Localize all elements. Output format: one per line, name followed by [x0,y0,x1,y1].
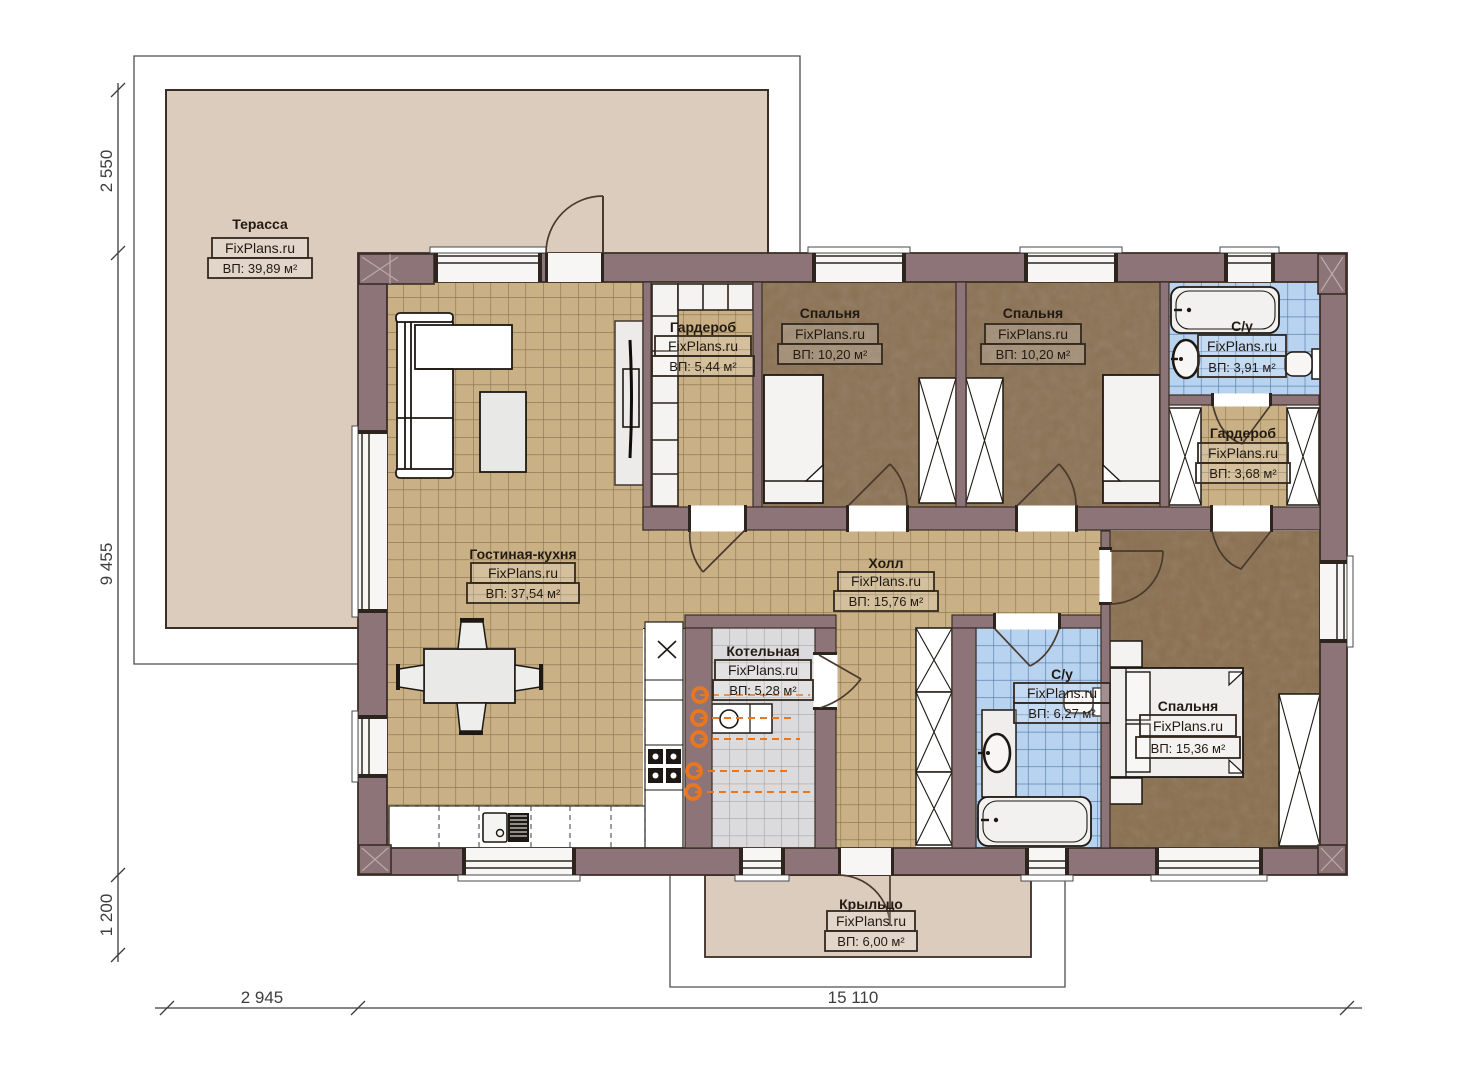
svg-text:9 455: 9 455 [97,543,116,586]
svg-text:Гардероб: Гардероб [1210,425,1277,441]
svg-text:Спальня: Спальня [1158,698,1218,714]
svg-text:FixPlans.ru: FixPlans.ru [795,326,865,342]
svg-text:Крыльцо: Крыльцо [839,896,903,912]
svg-text:ВП: 3,91 м²: ВП: 3,91 м² [1208,360,1276,375]
svg-text:FixPlans.ru: FixPlans.ru [728,662,798,678]
svg-text:ВП: 5,44 м²: ВП: 5,44 м² [669,359,737,374]
svg-text:FixPlans.ru: FixPlans.ru [225,240,295,256]
svg-text:ВП: 6,27 м²: ВП: 6,27 м² [1028,706,1096,721]
svg-text:15 110: 15 110 [828,988,879,1007]
svg-text:ВП: 10,20 м²: ВП: 10,20 м² [996,347,1071,362]
svg-text:FixPlans.ru: FixPlans.ru [1208,445,1278,461]
svg-text:FixPlans.ru: FixPlans.ru [836,913,906,929]
svg-text:2 945: 2 945 [241,988,284,1007]
svg-text:Гостиная-кухня: Гостиная-кухня [469,546,576,562]
svg-text:FixPlans.ru: FixPlans.ru [851,573,921,589]
svg-text:FixPlans.ru: FixPlans.ru [668,338,738,354]
svg-text:ВП: 5,28 м²: ВП: 5,28 м² [729,683,797,698]
svg-text:ВП: 6,00 м²: ВП: 6,00 м² [837,934,905,949]
svg-text:2 550: 2 550 [97,150,116,193]
svg-text:ВП: 37,54 м²: ВП: 37,54 м² [486,586,561,601]
svg-text:FixPlans.ru: FixPlans.ru [488,565,558,581]
svg-text:1 200: 1 200 [97,894,116,937]
svg-text:Терасса: Терасса [232,216,288,232]
svg-text:ВП: 10,20 м²: ВП: 10,20 м² [793,347,868,362]
svg-text:Холл: Холл [868,555,903,571]
svg-text:ВП: 39,89 м²: ВП: 39,89 м² [223,261,298,276]
svg-text:ВП: 15,76 м²: ВП: 15,76 м² [849,594,924,609]
svg-text:ВП: 3,68 м²: ВП: 3,68 м² [1209,466,1277,481]
svg-text:FixPlans.ru: FixPlans.ru [1207,338,1277,354]
svg-text:Котельная: Котельная [726,643,799,659]
svg-text:Спальня: Спальня [1003,305,1063,321]
svg-text:С/у: С/у [1231,318,1253,334]
svg-text:FixPlans.ru: FixPlans.ru [1153,718,1223,734]
svg-text:ВП: 15,36 м²: ВП: 15,36 м² [1151,741,1226,756]
svg-text:FixPlans.ru: FixPlans.ru [1027,685,1097,701]
svg-text:Гардероб: Гардероб [670,319,737,335]
svg-text:FixPlans.ru: FixPlans.ru [998,326,1068,342]
svg-text:Спальня: Спальня [800,305,860,321]
svg-text:С/у: С/у [1051,666,1073,682]
